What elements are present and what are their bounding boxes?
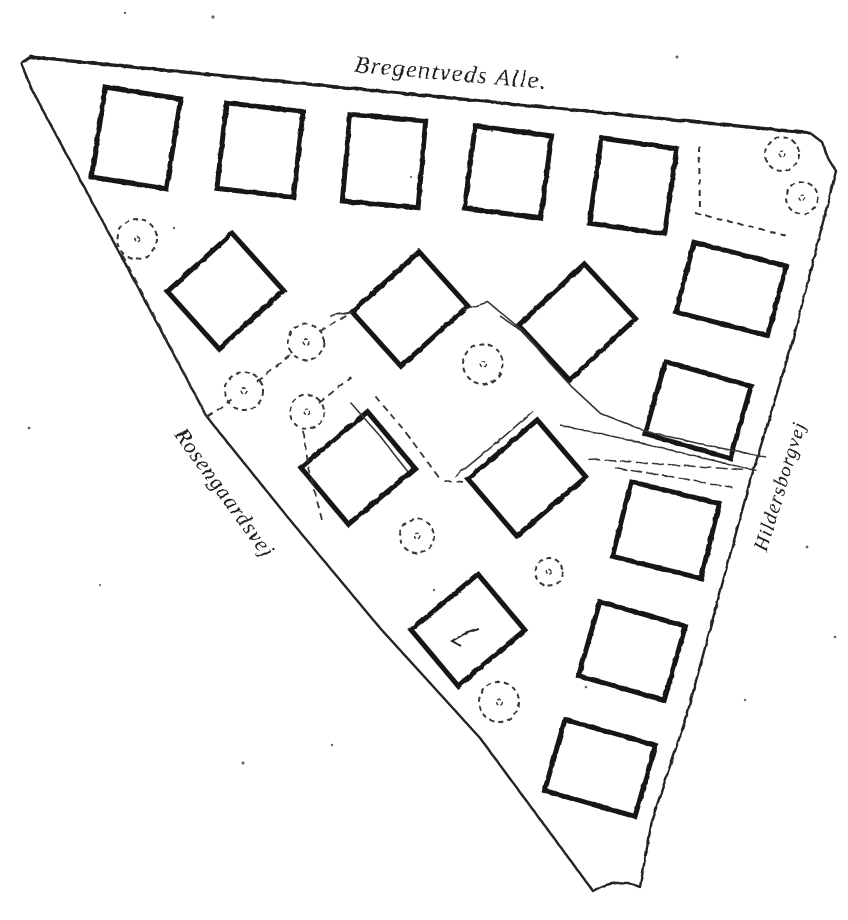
svg-text:Bregentveds Alle.: Bregentveds Alle. [353, 52, 548, 95]
svg-text:Hildersborgvej: Hildersborgvej [750, 419, 811, 555]
svg-text:Rosengaardsvej: Rosengaardsvej [169, 422, 280, 562]
